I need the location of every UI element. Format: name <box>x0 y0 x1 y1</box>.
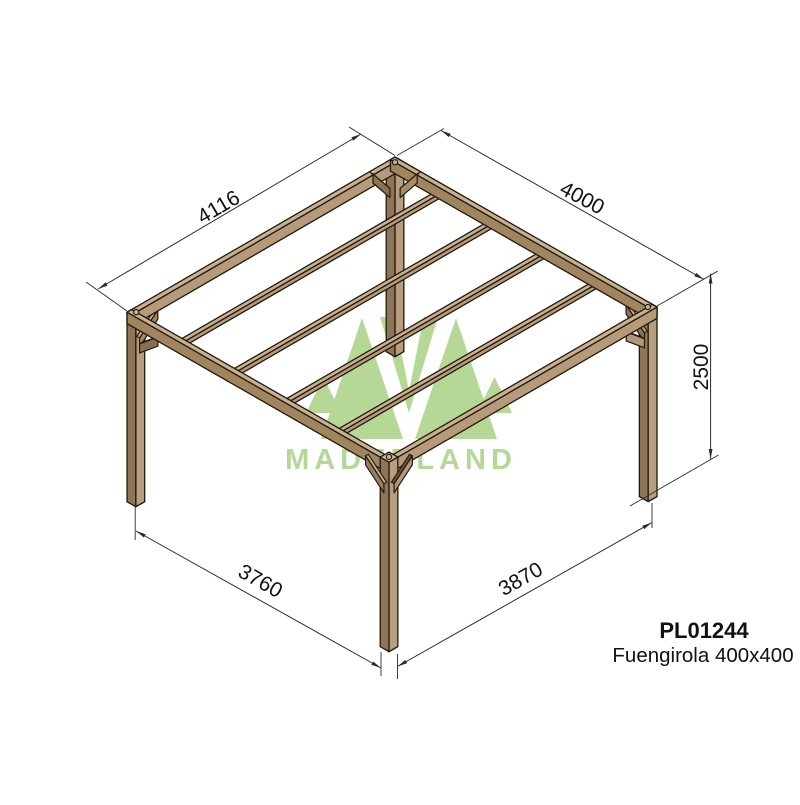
svg-text:Fuengirola 400x400: Fuengirola 400x400 <box>612 644 793 667</box>
svg-text:2500: 2500 <box>690 344 713 391</box>
svg-text:PL01244: PL01244 <box>659 618 749 643</box>
